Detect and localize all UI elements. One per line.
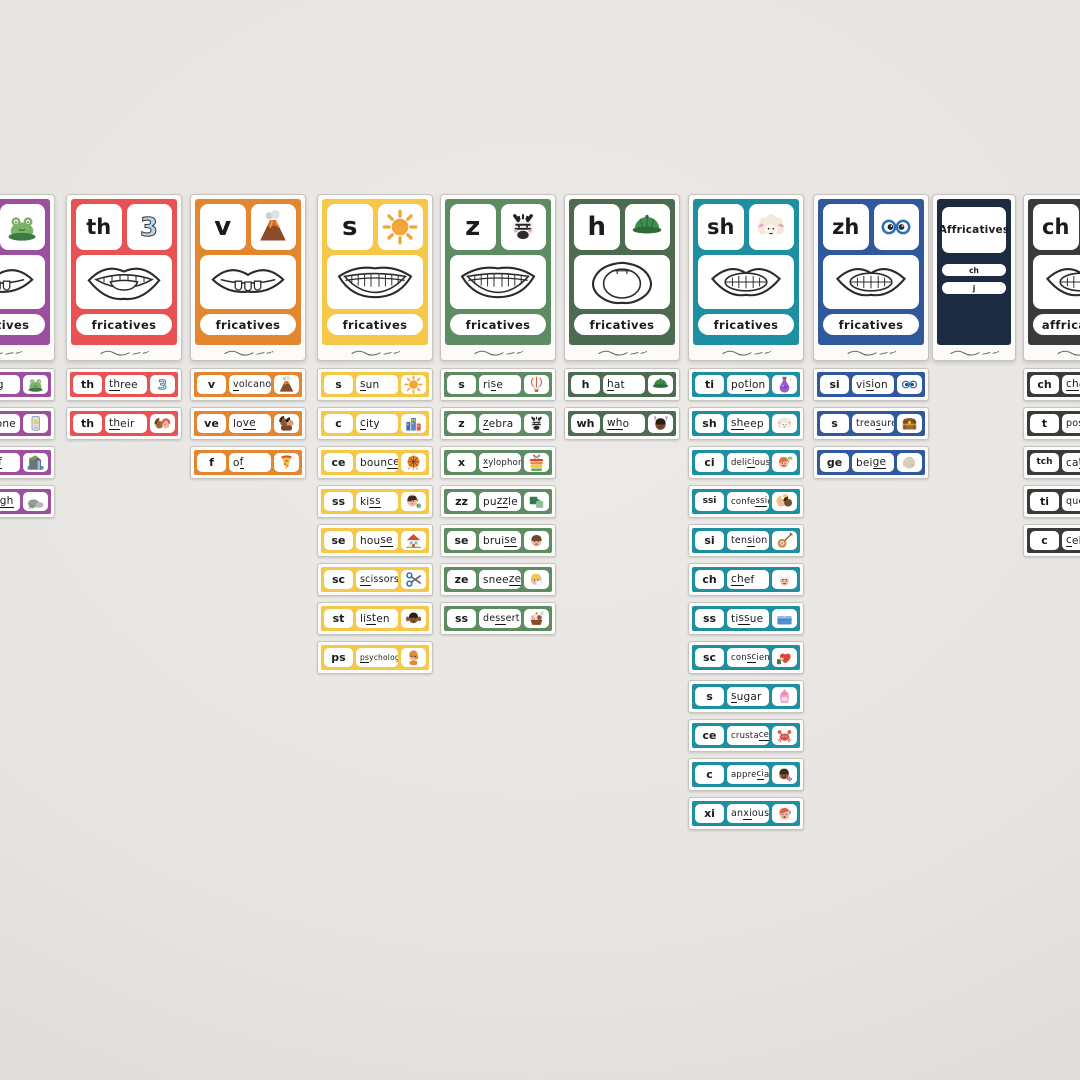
word-target-grapheme: sc	[747, 652, 757, 663]
word-part-before: ri	[483, 379, 491, 391]
keyword-image	[251, 204, 297, 250]
word-box: puzzle	[479, 492, 521, 511]
word-box: delicious	[727, 453, 769, 472]
grapheme-letter: s	[327, 204, 373, 250]
word-card-band: ge beige	[817, 450, 925, 475]
grapheme-box: si	[820, 375, 849, 394]
word-image-box	[897, 375, 922, 394]
word-card-band: z zebra	[444, 411, 552, 436]
squiggle-mark	[569, 345, 675, 360]
word-box: love	[229, 414, 271, 433]
word-card-band: ps psychologist	[321, 645, 429, 670]
word-card-band: ci delicious	[692, 450, 800, 475]
mouth-diagram-labiodental	[206, 258, 290, 306]
xylophone-icon	[527, 453, 546, 472]
word-card: c cello	[1023, 524, 1080, 557]
word-image-box	[772, 609, 797, 628]
word-part-after: ure	[881, 418, 894, 429]
word-card: ss dessert	[440, 602, 556, 635]
word-card: s sugar	[688, 680, 804, 713]
word-box: conscience	[727, 648, 769, 667]
mouth-diagram-teeth-smile	[333, 258, 417, 306]
word-card: f of	[190, 446, 306, 479]
word-part-after: one	[0, 418, 16, 430]
word-target-grapheme: ssi	[755, 496, 767, 507]
word-box: rise	[479, 375, 521, 394]
word-image-box: ??	[648, 414, 673, 433]
word-part-before: ki	[360, 496, 369, 508]
word-image-box	[772, 375, 797, 394]
word-card-band: f of	[194, 450, 302, 475]
word-card: se house	[317, 524, 433, 557]
grapheme-box: f	[197, 453, 226, 472]
word-card-band: v volcano	[194, 372, 302, 397]
word-card: ci delicious	[688, 446, 804, 479]
mouth-articulation-diagram	[76, 255, 172, 309]
word-part-before: hou	[360, 535, 380, 547]
word-part-before: snee	[483, 574, 509, 586]
word-part-before: de	[483, 613, 495, 624]
word-card-list: ti potion sh sheep ci delicious ssi conf…	[688, 368, 804, 830]
phoneme-column-f: f fricatives f frog ph phone ff cliff	[0, 194, 55, 524]
grapheme-box: z	[447, 414, 476, 433]
word-target-grapheme: se	[380, 534, 392, 547]
grapheme-box: c	[695, 765, 724, 784]
word-image-box	[772, 492, 797, 511]
delicious-icon	[775, 453, 794, 472]
card-color-area: f fricatives	[0, 199, 50, 345]
frog-icon	[26, 375, 45, 394]
grapheme-letter: z	[450, 204, 496, 250]
word-image-box	[772, 804, 797, 823]
word-target-grapheme: si	[866, 378, 875, 391]
keyword-image	[378, 204, 424, 250]
word-part-after: ef	[744, 574, 755, 586]
word-card: x xylophone	[440, 446, 556, 479]
word-card-band: ze sneeze	[444, 567, 552, 592]
word-part-after: ello	[1072, 535, 1080, 547]
grapheme-box: st	[324, 609, 353, 628]
word-image-box	[23, 453, 48, 472]
hug-icon	[277, 414, 296, 433]
word-image-box	[401, 609, 426, 628]
word-card: s rise	[440, 368, 556, 401]
word-card-band: s treasure	[817, 411, 925, 436]
pizza-icon	[277, 453, 296, 472]
word-card: ssi confession	[688, 485, 804, 518]
word-card-list: v volcano ve love f of	[190, 368, 306, 479]
phoneme-main-card: h fricatives	[564, 194, 680, 361]
word-part-before: deli	[731, 458, 747, 468]
word-target-grapheme: f	[240, 456, 244, 469]
word-card: xi anxious	[688, 797, 804, 830]
word-part-after: le	[508, 496, 518, 508]
grapheme-box: s	[820, 414, 849, 433]
squiggle-doodle	[596, 348, 648, 357]
word-image-box	[772, 648, 797, 667]
word-image-box: 3	[150, 375, 175, 394]
word-part-before: appre	[731, 770, 757, 780]
tissue-icon	[775, 609, 794, 628]
word-box: sugar	[727, 687, 769, 706]
word-card: gh rough	[0, 485, 55, 518]
word-image-box	[524, 453, 549, 472]
squiggle-mark	[322, 345, 428, 360]
word-part-before: an	[731, 808, 743, 819]
word-card: wh who ??	[564, 407, 680, 440]
word-card-band: xi anxious	[692, 801, 800, 826]
word-target-grapheme: ge	[873, 456, 887, 469]
word-box: vision	[852, 375, 894, 394]
word-image-box	[772, 726, 797, 745]
card-color-area: th 3 fricatives	[71, 199, 177, 345]
sun-icon	[404, 375, 423, 394]
phoneme-family-label: fricatives	[698, 314, 794, 335]
phoneme-main-card: zh fricatives	[813, 194, 929, 361]
word-card: st listen	[317, 602, 433, 635]
potion-icon	[775, 375, 794, 394]
phoneme-family-label: fricatives	[0, 314, 45, 335]
word-target-grapheme: ss	[495, 613, 505, 625]
rocks-icon	[26, 492, 45, 511]
grapheme-box: ze	[447, 570, 476, 589]
card-color-area: sh fricatives	[693, 199, 799, 345]
word-box: sheep	[727, 414, 769, 433]
word-box: sun	[356, 375, 398, 394]
phoneme-column-zh: zh fricatives si vision s treasure ge be…	[813, 194, 929, 485]
svg-text:?: ?	[654, 416, 657, 422]
squiggle-doodle	[472, 348, 524, 357]
banjo-icon	[775, 531, 794, 550]
word-part-before: pos	[1066, 418, 1080, 429]
card-color-area: zh fricatives	[818, 199, 924, 345]
word-image-box	[401, 531, 426, 550]
word-box: scissors	[356, 570, 398, 589]
mouth-diagram-open	[580, 258, 664, 306]
grapheme-box: ssi	[695, 492, 724, 511]
frog-icon	[4, 209, 40, 245]
word-box: question	[1062, 492, 1080, 511]
word-image-box	[274, 453, 299, 472]
word-box: anxious	[727, 804, 769, 823]
word-part-before: ca	[1066, 457, 1079, 469]
mouth-articulation-diagram	[0, 255, 45, 309]
word-image-box	[772, 531, 797, 550]
phoneme-column-v: v fricatives v volcano ve love f of	[190, 194, 306, 485]
word-part-before: lo	[233, 418, 243, 430]
word-card-band: ph phone	[0, 411, 51, 436]
phoneme-family-label: fricatives	[327, 314, 423, 335]
grapheme-box: ch	[1030, 375, 1059, 394]
word-part-before: boun	[360, 457, 387, 469]
word-part-before: vi	[856, 379, 866, 391]
grapheme-box: t	[1030, 414, 1059, 433]
grapheme-letter: sh	[698, 204, 744, 250]
keyword-image	[874, 204, 920, 250]
grapheme-box: ce	[695, 726, 724, 745]
squiggle-doodle	[349, 348, 401, 357]
number-three-icon: 3	[131, 209, 167, 245]
word-part-after: un	[366, 379, 380, 391]
word-card-band: c city	[321, 411, 429, 436]
card-color-area: s fricatives	[322, 199, 428, 345]
word-card: ce bounce	[317, 446, 433, 479]
treasure-icon	[900, 414, 919, 433]
word-box: beige	[852, 453, 894, 472]
word-card: si tension	[688, 524, 804, 557]
word-box: bounce	[356, 453, 398, 472]
phoneme-column-z: z fricatives s rise z zebra x xylophone	[440, 194, 556, 641]
mouth-diagram-interdental	[82, 258, 166, 306]
word-card: ch cherry	[1023, 368, 1080, 401]
sheep-icon	[753, 209, 789, 245]
word-part-after: ate	[764, 770, 769, 780]
word-target-grapheme: ci	[757, 769, 764, 780]
word-card: sh sheep	[688, 407, 804, 440]
squiggle-doodle	[222, 348, 274, 357]
squiggle-doodle	[0, 348, 23, 357]
word-part-after: ychologist	[369, 653, 398, 662]
keyword-image	[0, 204, 45, 250]
sheep-icon	[775, 414, 794, 433]
mouth-diagram-teeth-smile	[456, 258, 540, 306]
word-image-box	[401, 648, 426, 667]
word-target-grapheme: ze	[509, 573, 521, 586]
word-image-box	[524, 375, 549, 394]
word-target-grapheme: ps	[360, 653, 369, 663]
grapheme-box: ve	[197, 414, 226, 433]
word-card: ce crustacean	[688, 719, 804, 752]
phoneme-main-card: th 3 fricatives	[66, 194, 182, 361]
word-card-band: sc conscience	[692, 645, 800, 670]
grapheme-box: sc	[695, 648, 724, 667]
cliff-icon	[26, 453, 45, 472]
word-card: ge beige	[813, 446, 929, 479]
word-part-after: ous	[755, 458, 769, 468]
word-part-after: ert	[506, 613, 520, 624]
grapheme-box: ti	[695, 375, 724, 394]
keyword-image	[625, 204, 671, 250]
word-card-band: tch catch	[1027, 450, 1080, 475]
word-target-grapheme: h	[607, 378, 614, 391]
word-part-after: en	[376, 613, 390, 625]
chef-icon	[775, 570, 794, 589]
word-target-grapheme: th	[109, 417, 120, 430]
grapheme-box: sc	[324, 570, 353, 589]
word-part-after: ugar	[737, 691, 762, 703]
word-card-band: c appreciate	[692, 762, 800, 787]
word-part-before: brui	[483, 535, 504, 547]
phoneme-column-th: th 3 fricatives th three 3 th their	[66, 194, 182, 446]
word-card-band: s sun	[321, 372, 429, 397]
mouth-articulation-diagram	[450, 255, 546, 309]
word-card-band: zz puzzle	[444, 489, 552, 514]
word-card: se bruise	[440, 524, 556, 557]
word-card-band: si tension	[692, 528, 800, 553]
word-part-after: ity	[366, 418, 380, 430]
word-box: psychologist	[356, 648, 398, 667]
conscience-icon	[775, 648, 794, 667]
grapheme-letter: h	[574, 204, 620, 250]
squiggle-doodle	[98, 348, 150, 357]
sneeze-icon	[527, 570, 546, 589]
word-card-band: se house	[321, 528, 429, 553]
title-card-heading: Affricatives	[942, 207, 1006, 253]
word-card: th their	[66, 407, 182, 440]
word-image-box	[772, 570, 797, 589]
word-card: ti potion	[688, 368, 804, 401]
word-box: catch	[1062, 453, 1080, 472]
word-box: volcano	[229, 375, 271, 394]
word-target-grapheme: th	[109, 378, 120, 391]
word-box: city	[356, 414, 398, 433]
grapheme-box: s	[324, 375, 353, 394]
word-card-band: wh who ??	[568, 411, 676, 436]
phoneme-main-card: f fricatives	[0, 194, 55, 361]
word-card-band: si vision	[817, 372, 925, 397]
word-card-list: si vision s treasure ge beige	[813, 368, 929, 479]
phoneme-family-label: fricatives	[450, 314, 546, 335]
grapheme-letter: ch	[1033, 204, 1079, 250]
word-target-grapheme: ch	[731, 573, 744, 586]
word-image-box	[772, 765, 797, 784]
word-target-grapheme: st	[366, 612, 376, 625]
mouth-articulation-diagram	[200, 255, 296, 309]
word-box: of	[229, 453, 271, 472]
psychologist-icon	[404, 648, 423, 667]
word-card: ze sneeze	[440, 563, 556, 596]
mouth-articulation-diagram	[1033, 255, 1080, 309]
word-image-box	[524, 570, 549, 589]
who-icon: ??	[651, 414, 670, 433]
word-part-after: olcano	[239, 379, 271, 390]
phoneme-pill-list: chj	[942, 258, 1006, 294]
flashcard-board: f fricatives f frog ph phone ff cliff	[0, 0, 1080, 1080]
grapheme-letter: th	[76, 204, 122, 250]
word-card-band: ch cherry	[1027, 372, 1080, 397]
word-box: house	[356, 531, 398, 550]
word-part-after: ience	[756, 653, 769, 663]
word-image-box	[23, 492, 48, 511]
squiggle-mark	[818, 345, 924, 360]
grapheme-box: se	[447, 531, 476, 550]
word-target-grapheme: gh	[0, 495, 14, 508]
word-card-band: ss dessert	[444, 606, 552, 631]
card-color-area: h fricatives	[569, 199, 675, 345]
phoneme-column-s: s fricatives s sun c city ce bounce	[317, 194, 433, 680]
word-part-after: at	[614, 379, 625, 391]
grapheme-box: ps	[324, 648, 353, 667]
word-part-after: e	[496, 379, 503, 391]
word-image-box	[648, 375, 673, 394]
word-card: ss kiss	[317, 485, 433, 518]
phoneme-column-h: h fricatives h hat wh who ??	[564, 194, 680, 446]
word-box: sneeze	[479, 570, 521, 589]
word-card-list: th three 3 th their	[66, 368, 182, 440]
word-card-band: se bruise	[444, 528, 552, 553]
puzzle-icon	[527, 492, 546, 511]
word-card-band: st listen	[321, 606, 429, 631]
word-image-box	[524, 492, 549, 511]
word-card: ff cliff	[0, 446, 55, 479]
svg-text:3: 3	[158, 378, 167, 393]
word-card: ch chef	[688, 563, 804, 596]
card-color-area: ch affricatives	[1028, 199, 1080, 345]
word-card: si vision	[813, 368, 929, 401]
word-card: sc scissors	[317, 563, 433, 596]
basketball-icon	[404, 453, 423, 472]
word-box: potion	[727, 375, 769, 394]
cap-icon	[629, 209, 665, 245]
word-card-band: ve love	[194, 411, 302, 436]
word-card: ph phone	[0, 407, 55, 440]
grapheme-box: c	[324, 414, 353, 433]
volcano-icon	[277, 375, 296, 394]
anxious-icon	[775, 804, 794, 823]
squiggle-mark	[445, 345, 551, 360]
listening-icon	[404, 609, 423, 628]
volcano-icon	[255, 209, 291, 245]
scissors-icon	[404, 570, 423, 589]
squiggle-doodle	[845, 348, 897, 357]
phoneme-family-label: fricatives	[574, 314, 670, 335]
balloon-icon	[527, 375, 546, 394]
word-image-box	[401, 414, 426, 433]
squiggle-mark	[71, 345, 177, 360]
word-image-box	[401, 570, 426, 589]
word-card-band: ce crustacean	[692, 723, 800, 748]
word-card: v volcano	[190, 368, 306, 401]
word-card: t posture	[1023, 407, 1080, 440]
card-color-area: z fricatives	[445, 199, 551, 345]
word-target-grapheme: se	[504, 534, 516, 547]
word-box: xylophone	[479, 453, 521, 472]
phone-icon	[26, 414, 45, 433]
word-part-after: on	[755, 535, 767, 546]
grapheme-box: wh	[571, 414, 600, 433]
word-part-after: ylophone	[488, 458, 521, 468]
word-card: ti question	[1023, 485, 1080, 518]
word-box: chef	[727, 570, 769, 589]
word-card-band: t posture	[1027, 411, 1080, 436]
word-target-grapheme: zz	[497, 495, 508, 508]
word-image-box	[772, 453, 797, 472]
word-box: three	[105, 375, 147, 394]
word-box: cello	[1062, 531, 1080, 550]
word-part-after: on	[752, 379, 765, 391]
word-image-box	[401, 492, 426, 511]
grapheme-box: s	[447, 375, 476, 394]
word-card-list: s sun c city ce bounce ss kiss se house	[317, 368, 433, 674]
word-image-box	[897, 414, 922, 433]
word-target-grapheme: ss	[738, 612, 749, 625]
word-card-band: ce bounce	[321, 450, 429, 475]
word-part-after: ous	[752, 808, 769, 819]
appreciate-icon	[775, 765, 794, 784]
mouth-diagram-rounded-teeth	[704, 258, 788, 306]
word-card-band: ss kiss	[321, 489, 429, 514]
bruise-icon	[527, 531, 546, 550]
word-part-before: ti	[731, 613, 738, 625]
word-part-before: confe	[731, 497, 755, 507]
word-box: cherry	[1062, 375, 1080, 394]
word-image-box	[274, 375, 299, 394]
grapheme-box: zz	[447, 492, 476, 511]
word-box: kiss	[356, 492, 398, 511]
phoneme-column-ch: ch affricatives ch cherry t posture tch …	[1023, 194, 1080, 563]
squiggle-mark	[0, 345, 50, 360]
word-part-after: on	[767, 497, 769, 507]
